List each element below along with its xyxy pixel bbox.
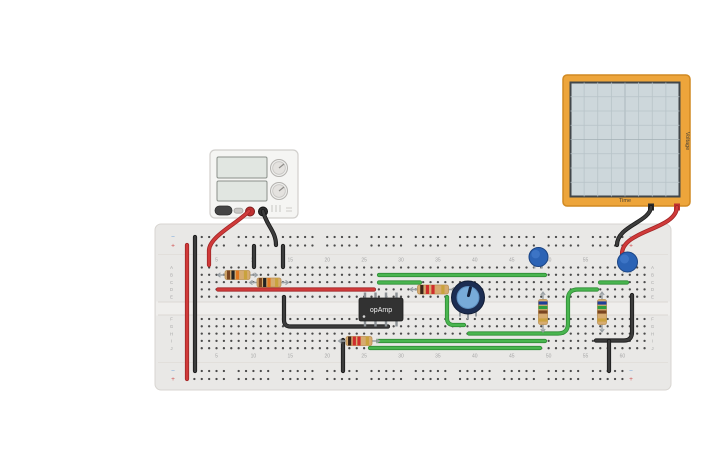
rail-hole	[415, 236, 417, 238]
rail-hole	[341, 378, 343, 380]
hole	[333, 347, 335, 349]
hole	[614, 318, 616, 320]
hole	[466, 325, 468, 327]
hole	[282, 274, 284, 276]
hole	[223, 340, 225, 342]
hole	[570, 332, 572, 334]
hole	[614, 296, 616, 298]
hole	[238, 325, 240, 327]
hole	[348, 332, 350, 334]
hole	[584, 347, 586, 349]
hole	[333, 266, 335, 268]
hole	[289, 332, 291, 334]
rail-hole	[215, 378, 217, 380]
oscilloscope[interactable]: Time Voltage	[563, 75, 690, 211]
hole	[496, 318, 498, 320]
rail-hole	[533, 370, 535, 372]
rail-hole	[215, 244, 217, 246]
hole	[363, 274, 365, 276]
hole	[289, 274, 291, 276]
hole	[577, 281, 579, 283]
hole	[592, 325, 594, 327]
hole	[599, 288, 601, 290]
hole	[304, 281, 306, 283]
rail-hole	[503, 244, 505, 246]
hole	[245, 318, 247, 320]
rail-hole	[297, 378, 299, 380]
hole	[260, 318, 262, 320]
hole	[481, 325, 483, 327]
current-knob[interactable]	[271, 183, 288, 200]
row-letter: A	[651, 265, 654, 270]
hole	[348, 296, 350, 298]
rail-hole	[304, 236, 306, 238]
hole	[252, 347, 254, 349]
voltage-knob[interactable]	[271, 160, 288, 177]
hole	[584, 281, 586, 283]
hole	[267, 266, 269, 268]
hole	[511, 281, 513, 283]
potentiometer-knob[interactable]	[457, 287, 479, 309]
rail-hole	[297, 236, 299, 238]
hole	[518, 325, 520, 327]
rail-hole	[208, 236, 210, 238]
hole	[274, 332, 276, 334]
rail-hole	[599, 378, 601, 380]
hole	[555, 296, 557, 298]
potentiometer-pointer	[468, 288, 470, 296]
rail-hole	[282, 370, 284, 372]
hole	[607, 274, 609, 276]
rail-hole	[245, 244, 247, 246]
hole	[452, 332, 454, 334]
hole	[570, 347, 572, 349]
rail-hole	[459, 370, 461, 372]
hole	[392, 266, 394, 268]
hole	[415, 332, 417, 334]
col-number: 40	[472, 258, 478, 264]
rail-hole	[503, 378, 505, 380]
breadboard[interactable]: AABBCCDDEEFFGGHHIIJJ51015202530354045505…	[155, 224, 671, 390]
hole	[459, 332, 461, 334]
hole	[444, 266, 446, 268]
hole	[260, 325, 262, 327]
rail-hole	[518, 370, 520, 372]
resistor-band	[348, 337, 351, 346]
hole	[319, 332, 321, 334]
row-letter: C	[170, 280, 173, 285]
hole	[400, 288, 402, 290]
resistor-band	[353, 337, 356, 346]
rail-hole	[444, 370, 446, 372]
rail-hole	[503, 370, 505, 372]
rail-hole	[415, 244, 417, 246]
rail-hole	[289, 236, 291, 238]
resistor-band	[267, 278, 270, 287]
rail-hole	[429, 378, 431, 380]
rail-hole	[385, 378, 387, 380]
rail-hole	[547, 378, 549, 380]
hole	[636, 340, 638, 342]
hole	[540, 296, 542, 298]
hole	[319, 266, 321, 268]
hole	[245, 281, 247, 283]
hole	[311, 318, 313, 320]
hole	[400, 266, 402, 268]
hole	[422, 332, 424, 334]
hole	[533, 296, 535, 298]
col-number: 25	[361, 258, 367, 264]
hole	[356, 274, 358, 276]
hole	[496, 281, 498, 283]
hole	[547, 288, 549, 290]
power-button[interactable]	[215, 206, 232, 215]
rail-hole	[555, 236, 557, 238]
rail-hole	[208, 370, 210, 372]
hole	[230, 347, 232, 349]
hole	[636, 347, 638, 349]
hole	[503, 266, 505, 268]
hole	[533, 318, 535, 320]
hole	[326, 296, 328, 298]
hole	[356, 266, 358, 268]
hole	[547, 340, 549, 342]
hole	[415, 266, 417, 268]
hole	[252, 318, 254, 320]
plus-marker: +	[171, 243, 175, 250]
hole	[643, 274, 645, 276]
hole	[643, 332, 645, 334]
hole	[555, 288, 557, 290]
hole	[252, 340, 254, 342]
power-supply[interactable]	[210, 150, 298, 218]
hole	[599, 296, 601, 298]
hole	[223, 332, 225, 334]
rail-hole	[326, 378, 328, 380]
hole	[422, 325, 424, 327]
hole	[274, 274, 276, 276]
rail-hole	[562, 244, 564, 246]
rail-hole	[260, 370, 262, 372]
hole	[547, 347, 549, 349]
rail-hole	[444, 244, 446, 246]
hole	[230, 325, 232, 327]
rail-hole	[518, 244, 520, 246]
hole	[319, 318, 321, 320]
hole	[215, 318, 217, 320]
rail-hole	[607, 236, 609, 238]
rail-hole	[223, 244, 225, 246]
hole	[348, 318, 350, 320]
hole	[311, 296, 313, 298]
hole	[267, 274, 269, 276]
rail-hole	[503, 236, 505, 238]
rail-hole	[599, 370, 601, 372]
hole	[304, 266, 306, 268]
hole	[201, 325, 203, 327]
hole	[304, 347, 306, 349]
hole	[429, 281, 431, 283]
hole	[562, 281, 564, 283]
rail-hole	[599, 236, 601, 238]
hole	[525, 281, 527, 283]
col-number: 10	[251, 354, 257, 360]
hole	[311, 281, 313, 283]
hole	[392, 332, 394, 334]
hole	[429, 325, 431, 327]
hole	[466, 266, 468, 268]
minus-marker: −	[629, 368, 633, 375]
hole	[326, 318, 328, 320]
rail-hole	[525, 370, 527, 372]
row-letter: E	[651, 294, 654, 299]
hole	[333, 281, 335, 283]
hole	[282, 340, 284, 342]
hole	[245, 340, 247, 342]
hole	[201, 288, 203, 290]
hole	[525, 266, 527, 268]
hole	[260, 347, 262, 349]
hole	[629, 274, 631, 276]
hole	[422, 281, 424, 283]
rail-hole	[245, 378, 247, 380]
resistor-band	[366, 337, 369, 346]
plus-marker: +	[629, 376, 633, 383]
hole	[555, 340, 557, 342]
rail-hole	[614, 370, 616, 372]
rail-hole	[289, 370, 291, 372]
rail-hole	[547, 244, 549, 246]
rail-hole	[333, 236, 335, 238]
hole	[474, 325, 476, 327]
hole	[629, 347, 631, 349]
hole	[304, 274, 306, 276]
hole	[592, 274, 594, 276]
hole	[392, 325, 394, 327]
hole	[518, 266, 520, 268]
rail-hole	[297, 244, 299, 246]
rail-hole	[400, 244, 402, 246]
hole	[385, 288, 387, 290]
hole	[230, 340, 232, 342]
rail-hole	[518, 378, 520, 380]
rail-hole	[459, 244, 461, 246]
rail-hole	[348, 244, 350, 246]
rail-hole	[444, 236, 446, 238]
hole	[333, 274, 335, 276]
rail-hole	[488, 244, 490, 246]
hole	[370, 296, 372, 298]
resistor-band	[539, 306, 548, 309]
rail-hole	[356, 244, 358, 246]
row-letter: F	[170, 317, 173, 322]
hole	[518, 318, 520, 320]
hole	[614, 274, 616, 276]
rail-hole	[474, 236, 476, 238]
col-number: 20	[324, 354, 330, 360]
rail-hole	[223, 370, 225, 372]
hole	[533, 325, 535, 327]
hole	[363, 266, 365, 268]
hole	[584, 325, 586, 327]
hole	[488, 281, 490, 283]
rail-hole	[356, 236, 358, 238]
hole	[437, 281, 439, 283]
rail-hole	[289, 244, 291, 246]
hole	[215, 325, 217, 327]
hole	[208, 281, 210, 283]
hole	[304, 318, 306, 320]
hole	[230, 332, 232, 334]
hole	[518, 288, 520, 290]
rail-hole	[511, 378, 513, 380]
rail-hole	[481, 244, 483, 246]
resistor-band	[598, 306, 607, 309]
rail-hole	[474, 378, 476, 380]
rail-hole	[599, 244, 601, 246]
hole	[474, 318, 476, 320]
hole	[230, 266, 232, 268]
hole	[260, 296, 262, 298]
hole	[636, 318, 638, 320]
hole	[215, 266, 217, 268]
rail-hole	[392, 236, 394, 238]
rail-hole	[326, 370, 328, 372]
hole	[621, 288, 623, 290]
rail-hole	[333, 370, 335, 372]
rail-hole	[481, 370, 483, 372]
hole	[437, 325, 439, 327]
rail-hole	[577, 378, 579, 380]
hole	[629, 288, 631, 290]
hole	[378, 266, 380, 268]
hole	[400, 332, 402, 334]
rail-hole	[370, 370, 372, 372]
capacitor-b[interactable]	[618, 252, 638, 273]
rail-hole	[466, 378, 468, 380]
hole	[643, 266, 645, 268]
hole	[223, 266, 225, 268]
row-letter: B	[170, 273, 173, 278]
hole	[311, 340, 313, 342]
hole	[437, 332, 439, 334]
hole	[547, 296, 549, 298]
row-letter: G	[651, 324, 654, 329]
hole	[577, 296, 579, 298]
hole	[592, 318, 594, 320]
rail-hole	[577, 370, 579, 372]
hole	[481, 266, 483, 268]
rail-hole	[378, 236, 380, 238]
hole	[555, 266, 557, 268]
hole	[201, 281, 203, 283]
hole	[607, 325, 609, 327]
col-number: 5	[215, 258, 218, 264]
hole	[311, 332, 313, 334]
hole	[392, 296, 394, 298]
rail-hole	[260, 378, 262, 380]
hole	[547, 266, 549, 268]
hole	[274, 325, 276, 327]
hole	[267, 325, 269, 327]
hole	[614, 288, 616, 290]
rail-hole	[415, 378, 417, 380]
hole	[282, 347, 284, 349]
hole	[297, 347, 299, 349]
resistor-band	[598, 318, 607, 321]
rail-hole	[547, 370, 549, 372]
hole	[341, 332, 343, 334]
rail-hole	[555, 378, 557, 380]
hole	[407, 318, 409, 320]
hole	[304, 332, 306, 334]
rail-hole	[400, 236, 402, 238]
hole	[223, 281, 225, 283]
col-number: 60	[620, 354, 626, 360]
hole	[356, 332, 358, 334]
rail-hole	[201, 378, 203, 380]
hole	[584, 340, 586, 342]
power-switch[interactable]	[234, 208, 243, 213]
hole	[208, 340, 210, 342]
rail-hole	[252, 236, 254, 238]
rail-hole	[459, 378, 461, 380]
hole	[570, 281, 572, 283]
hole	[267, 332, 269, 334]
row-letter: J	[170, 346, 172, 351]
rail-hole	[385, 244, 387, 246]
rail-hole	[326, 236, 328, 238]
hole	[260, 332, 262, 334]
hole	[584, 274, 586, 276]
hole	[274, 266, 276, 268]
hole	[311, 266, 313, 268]
hole	[429, 318, 431, 320]
hole	[297, 281, 299, 283]
hole	[378, 296, 380, 298]
hole	[415, 296, 417, 298]
hole	[356, 296, 358, 298]
hole	[238, 340, 240, 342]
hole	[614, 347, 616, 349]
rail-hole	[282, 378, 284, 380]
hole	[599, 325, 601, 327]
rail-hole	[392, 370, 394, 372]
col-number: 35	[435, 258, 441, 264]
rail-hole	[245, 370, 247, 372]
col-number: 30	[398, 258, 404, 264]
hole	[577, 318, 579, 320]
rail-hole	[488, 370, 490, 372]
hole	[356, 318, 358, 320]
hole	[223, 296, 225, 298]
opamp-chip[interactable]: opAmp	[359, 293, 403, 327]
rail-hole	[356, 370, 358, 372]
rail-hole	[511, 244, 513, 246]
row-letter: H	[651, 331, 654, 336]
hole	[267, 318, 269, 320]
rail-hole	[592, 370, 594, 372]
hole	[599, 347, 601, 349]
plus-marker: +	[629, 243, 633, 250]
hole	[621, 318, 623, 320]
rail-hole	[422, 378, 424, 380]
hole	[297, 296, 299, 298]
hole	[518, 281, 520, 283]
resistor-band	[441, 285, 444, 294]
hole	[238, 347, 240, 349]
hole	[267, 340, 269, 342]
